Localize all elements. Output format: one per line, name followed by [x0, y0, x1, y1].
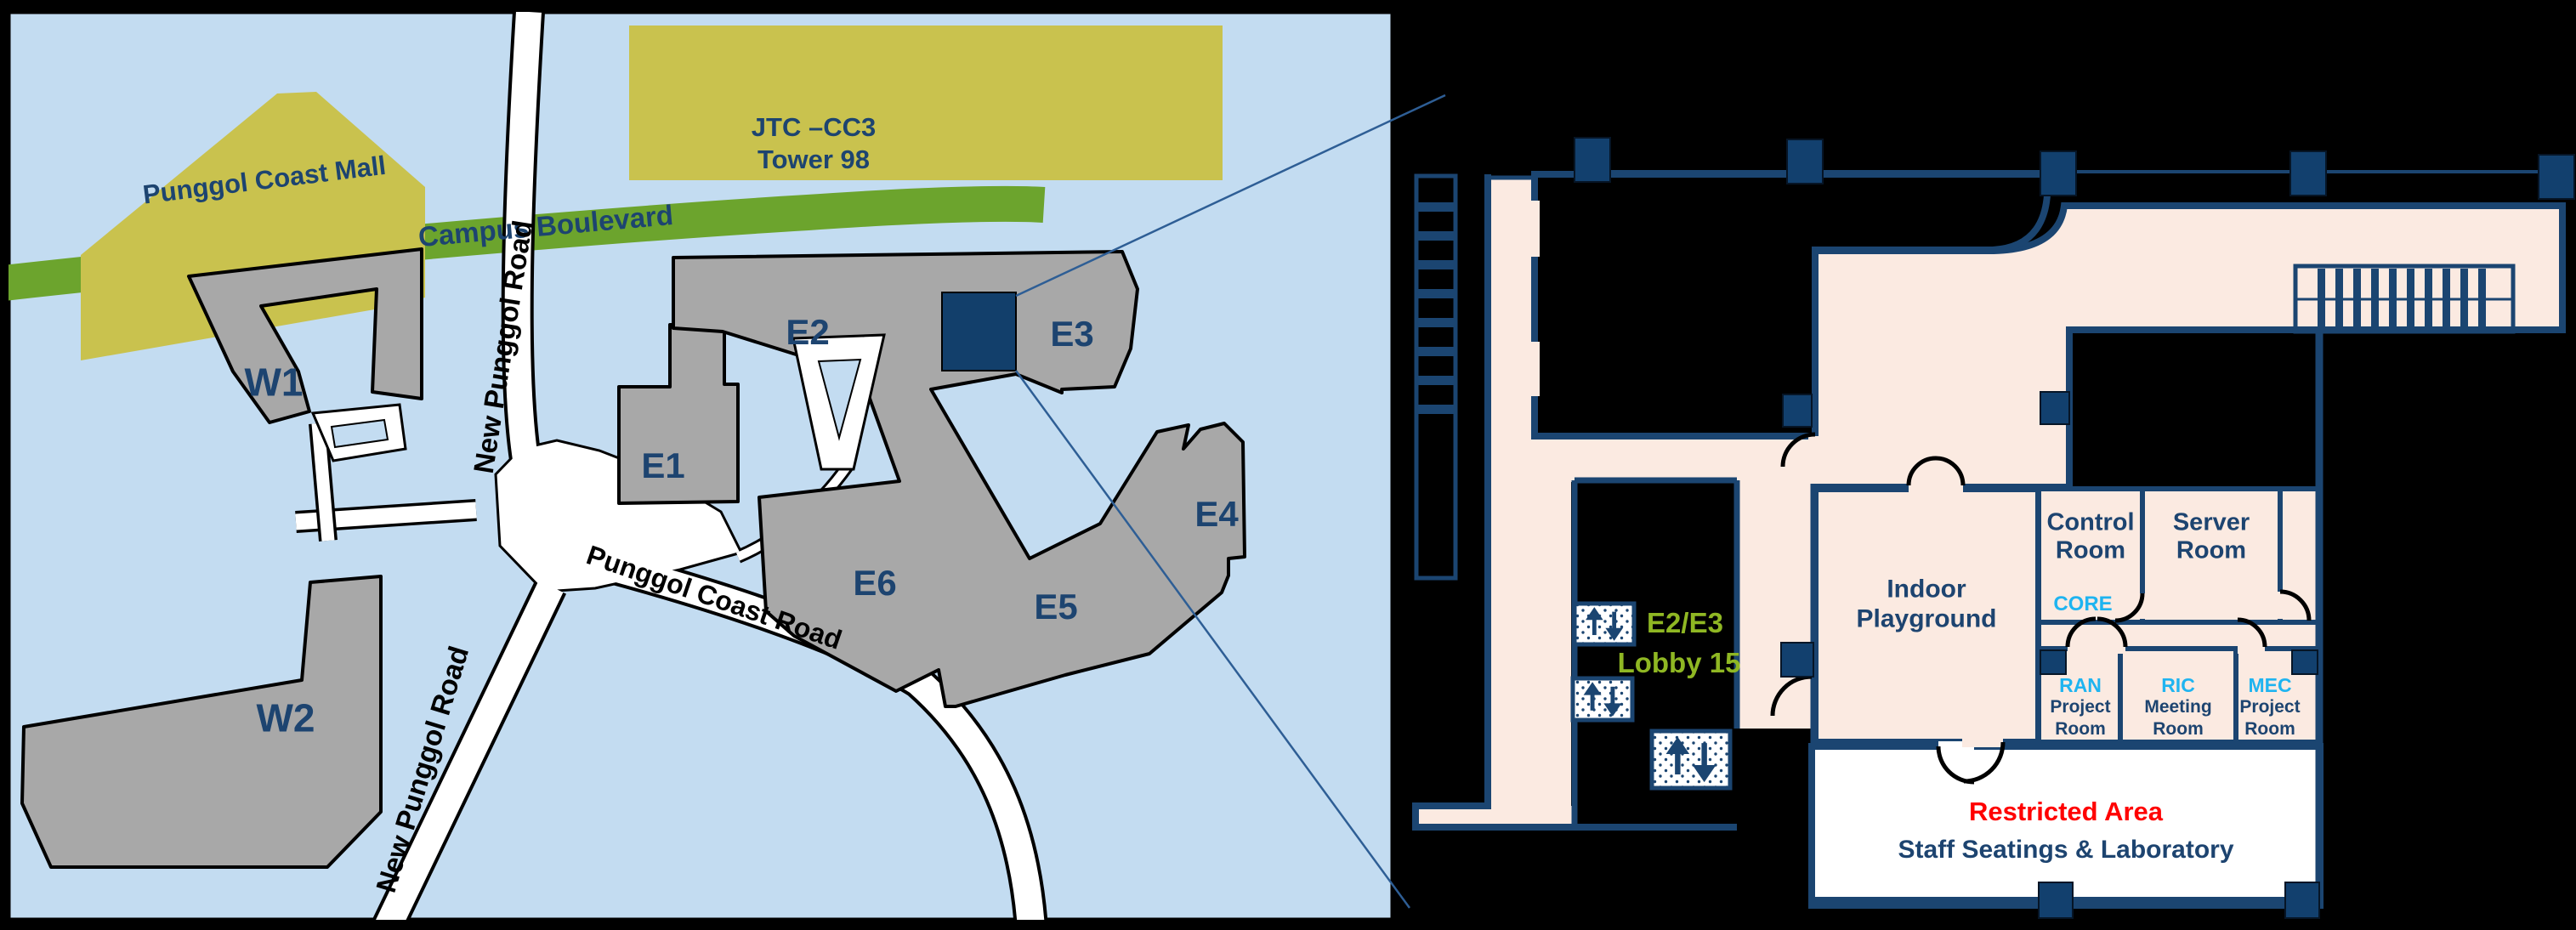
- building-e6-label: E6: [853, 563, 896, 604]
- lobby-label-line1: E2/E3: [1647, 607, 1723, 639]
- column: [2292, 650, 2318, 674]
- ric-room-label-line3: Room: [2153, 719, 2204, 740]
- ran-room-label-line2: Project: [2050, 697, 2110, 717]
- ran-room-label-line3: Room: [2055, 719, 2106, 740]
- highlighted-location-square: [942, 292, 1016, 371]
- lobby-label-line2: Lobby 15: [1618, 647, 1741, 679]
- map-and-floorplan-graphic: [0, 0, 2576, 930]
- ran-label: RAN: [2059, 674, 2102, 696]
- ric-label: RIC: [2161, 674, 2195, 696]
- jtc-label-line1: JTC –CC3: [752, 112, 876, 143]
- ric-room-label-line2: Meeting: [2144, 697, 2211, 717]
- door-gap: [2275, 592, 2285, 619]
- door-gap: [2238, 644, 2265, 654]
- mec-room-label-line2: Project: [2239, 697, 2300, 717]
- building-e4-label: E4: [1194, 494, 1238, 535]
- column: [2539, 155, 2574, 199]
- building-e2-label: E2: [786, 312, 829, 353]
- elevator-icon: [1652, 731, 1730, 788]
- server-room-label: Server Room: [2160, 509, 2262, 566]
- door-gap: [1529, 342, 1540, 396]
- elevator-icon: [1575, 604, 1634, 644]
- column: [1787, 139, 1823, 184]
- building-e5-label: E5: [1034, 587, 1077, 627]
- column: [2285, 882, 2319, 918]
- building-w1-label: W1: [245, 360, 304, 405]
- building-w2-label: W2: [257, 696, 315, 741]
- door-gap: [1529, 201, 1540, 257]
- indoor-playground-label: Indoor Playground: [1824, 576, 2028, 634]
- column: [2040, 650, 2066, 674]
- campus-map: [0, 12, 1393, 928]
- column: [1781, 643, 1813, 677]
- building-e3-label: E3: [1050, 314, 1093, 354]
- column: [2040, 151, 2076, 196]
- jtc-tower-building: [629, 26, 1223, 180]
- jtc-label-line2: Tower 98: [757, 145, 870, 175]
- column: [1575, 138, 1610, 182]
- column: [2040, 392, 2069, 424]
- core-label: CORE: [2053, 593, 2112, 616]
- door-gap: [2068, 644, 2125, 654]
- door-gap: [1962, 737, 2003, 747]
- column: [1783, 394, 1812, 427]
- mec-room-label-line3: Room: [2244, 719, 2295, 740]
- restricted-area-label: Restricted Area: [1969, 797, 2163, 827]
- stairs-west: [1416, 176, 1455, 578]
- building-e1-label: E1: [641, 445, 684, 486]
- column: [2039, 882, 2073, 918]
- column: [2290, 151, 2326, 196]
- door-gap: [1808, 436, 1819, 484]
- door-gap: [1909, 484, 1963, 494]
- slide-canvas: Punggol Coast Mall JTC –CC3 Tower 98 Cam…: [0, 0, 2576, 930]
- control-room-label: Control Room: [2040, 509, 2142, 566]
- mec-label: MEC: [2248, 674, 2291, 696]
- staff-seatings-label: Staff Seatings & Laboratory: [1898, 836, 2233, 865]
- elevator-icon: [1573, 678, 1632, 720]
